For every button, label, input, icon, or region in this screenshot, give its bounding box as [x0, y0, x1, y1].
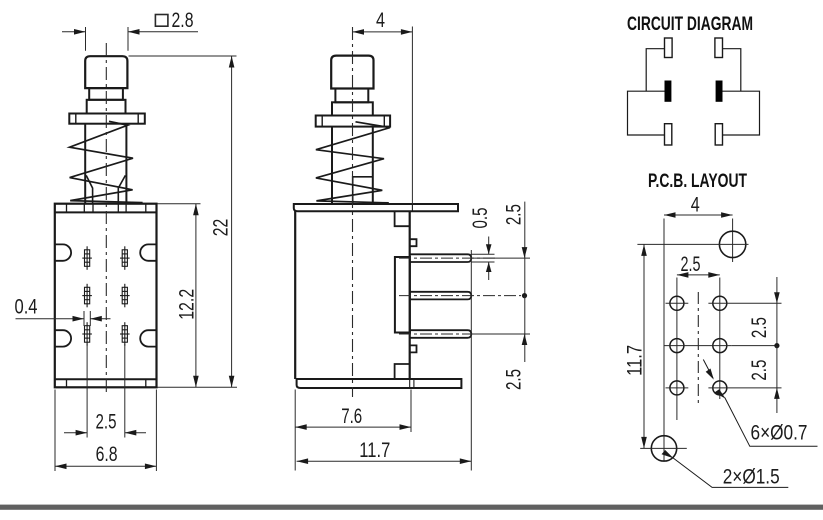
svg-text:2.5: 2.5: [681, 253, 701, 276]
svg-text:P.C.B. LAYOUT: P.C.B. LAYOUT: [648, 171, 747, 192]
svg-text:7.6: 7.6: [341, 405, 362, 428]
svg-text:22: 22: [209, 219, 232, 237]
svg-text:12.2: 12.2: [175, 289, 198, 320]
svg-text:CIRCUIT DIAGRAM: CIRCUIT DIAGRAM: [627, 14, 753, 35]
svg-text:4: 4: [376, 9, 385, 32]
svg-text:2.5: 2.5: [96, 410, 117, 433]
svg-text:11.7: 11.7: [359, 439, 390, 462]
svg-text:2.5: 2.5: [748, 317, 771, 338]
svg-text:2.5: 2.5: [502, 369, 525, 390]
svg-text:2.5: 2.5: [748, 360, 771, 381]
svg-text:0.4: 0.4: [15, 296, 38, 319]
svg-text:6.8: 6.8: [96, 443, 118, 466]
svg-text:2.8: 2.8: [172, 9, 194, 32]
svg-text:2.5: 2.5: [502, 204, 525, 225]
svg-text:2×Ø1.5: 2×Ø1.5: [723, 465, 780, 488]
svg-text:6×Ø0.7: 6×Ø0.7: [751, 421, 808, 444]
svg-text:0.5: 0.5: [469, 208, 492, 229]
svg-text:4: 4: [691, 193, 700, 216]
svg-text:11.7: 11.7: [623, 345, 646, 376]
